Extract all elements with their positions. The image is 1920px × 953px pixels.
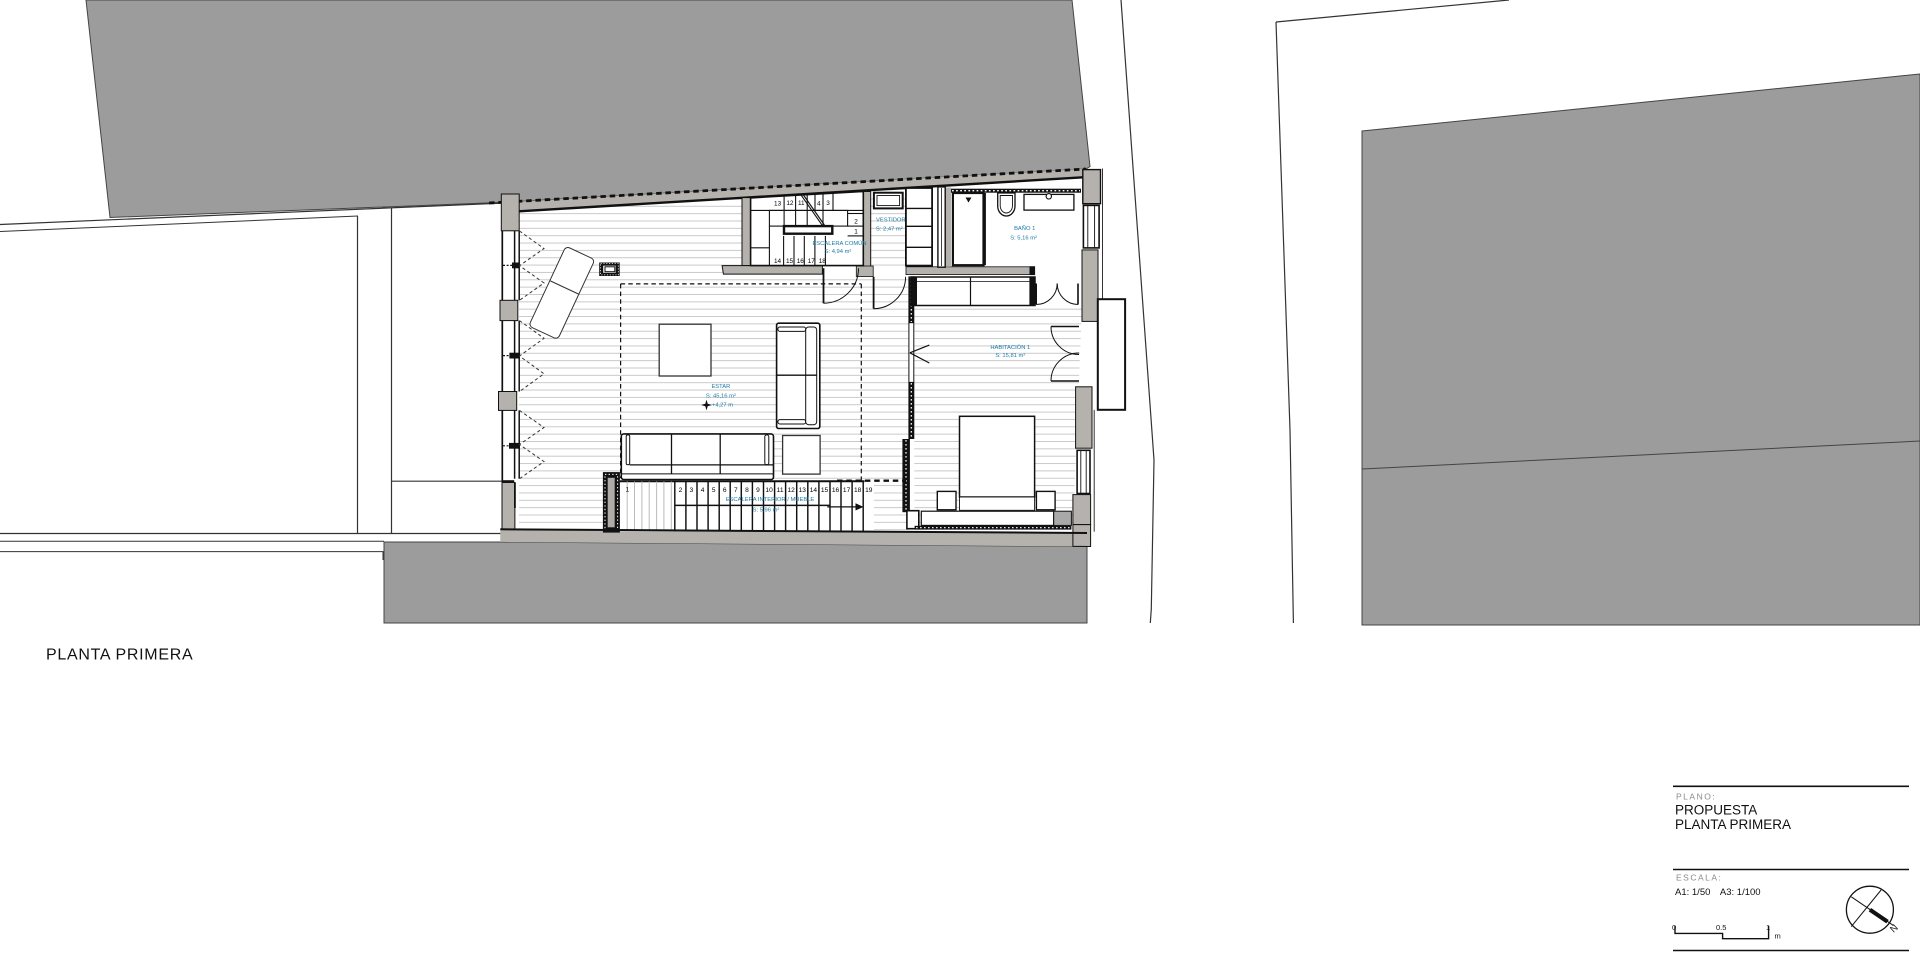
svg-text:BAÑO 1: BAÑO 1 [1014, 225, 1035, 232]
svg-text:17: 17 [808, 258, 816, 265]
svg-text:A1: 1/50 A3: 1/100: A1: 1/50 A3: 1/100 [1675, 887, 1761, 898]
svg-text:4: 4 [701, 487, 705, 494]
svg-text:14: 14 [810, 487, 818, 494]
svg-text:ESCALERA INTERIOR / MUEBLE: ESCALERA INTERIOR / MUEBLE [726, 497, 815, 503]
svg-text:9: 9 [756, 487, 760, 494]
svg-text:S: 5,96 m²: S: 5,96 m² [753, 508, 780, 514]
svg-text:2: 2 [679, 487, 683, 494]
svg-text:19: 19 [865, 487, 873, 494]
svg-text:S: 5,16 m²: S: 5,16 m² [1010, 236, 1037, 242]
svg-text:3: 3 [690, 487, 694, 494]
svg-text:2: 2 [854, 219, 858, 226]
svg-text:4: 4 [817, 200, 821, 207]
svg-text:S: 15,81 m²: S: 15,81 m² [995, 353, 1025, 359]
svg-text:18: 18 [854, 487, 862, 494]
svg-text:+4,27 m: +4,27 m [712, 403, 733, 409]
svg-text:15: 15 [821, 487, 829, 494]
svg-text:m: m [1775, 932, 1781, 941]
svg-text:15: 15 [786, 258, 794, 265]
svg-text:12: 12 [788, 487, 796, 494]
svg-text:1: 1 [626, 487, 630, 494]
svg-text:PROPUESTA: PROPUESTA [1675, 803, 1757, 818]
svg-text:16: 16 [797, 258, 805, 265]
svg-text:18: 18 [819, 258, 827, 265]
svg-text:7: 7 [734, 487, 738, 494]
svg-text:10: 10 [765, 487, 773, 494]
svg-text:PLANTA PRIMERA: PLANTA PRIMERA [46, 647, 193, 664]
svg-text:S: 45,16 m²: S: 45,16 m² [706, 393, 736, 399]
svg-text:PLANTA PRIMERA: PLANTA PRIMERA [1675, 817, 1791, 832]
svg-text:1: 1 [854, 228, 858, 235]
svg-text:VESTIDOR: VESTIDOR [876, 217, 906, 223]
svg-text:HABITACIÓN 1: HABITACIÓN 1 [990, 344, 1030, 351]
svg-text:S: 4,94 m²: S: 4,94 m² [825, 249, 852, 255]
svg-text:5: 5 [712, 487, 716, 494]
svg-text:S: 2,47 m²: S: 2,47 m² [876, 227, 903, 233]
svg-text:0.5: 0.5 [1716, 923, 1726, 932]
svg-text:PLANO:: PLANO: [1676, 792, 1716, 802]
svg-text:13: 13 [799, 487, 807, 494]
svg-text:3: 3 [826, 200, 830, 207]
svg-text:6: 6 [723, 487, 727, 494]
svg-text:ESTAR: ESTAR [711, 384, 730, 390]
svg-text:11: 11 [798, 200, 805, 207]
svg-text:ESCALA:: ESCALA: [1676, 873, 1722, 883]
svg-text:13: 13 [774, 200, 782, 207]
svg-text:ESCALERA COMÚN: ESCALERA COMÚN [812, 240, 866, 247]
svg-text:14: 14 [774, 258, 782, 265]
svg-text:11: 11 [777, 487, 784, 494]
svg-text:8: 8 [745, 487, 749, 494]
svg-text:12: 12 [786, 200, 794, 207]
svg-text:17: 17 [843, 487, 851, 494]
svg-text:16: 16 [832, 487, 840, 494]
